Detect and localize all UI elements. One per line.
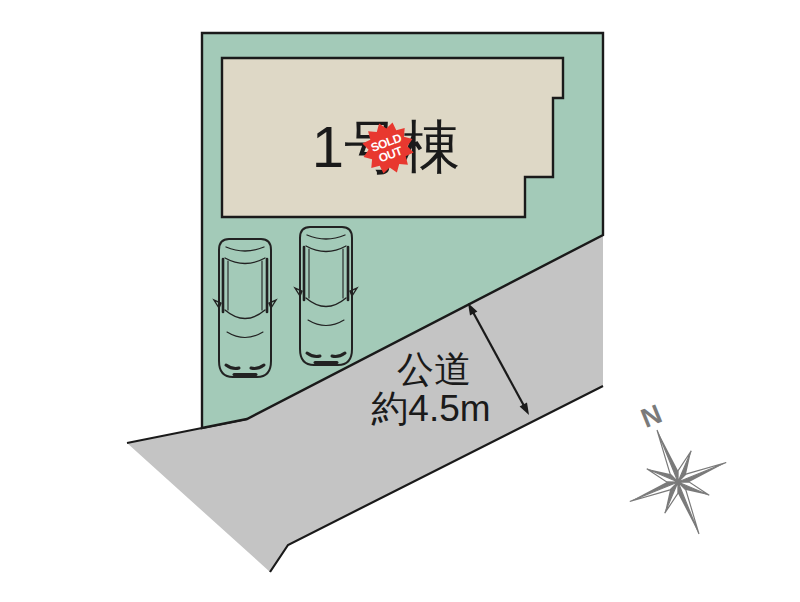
road-width-label: 約4.5m [371, 388, 490, 429]
road-name-label: 公道 [397, 349, 471, 390]
compass-north-label: N [637, 399, 666, 434]
lot-plan-canvas: 1号棟 公道 約4.5m SOLD OUT N [0, 0, 800, 602]
compass-rose: N [598, 383, 748, 554]
lot-plan-svg: 1号棟 公道 約4.5m SOLD OUT N [0, 0, 800, 602]
compass-light-points [609, 411, 747, 554]
